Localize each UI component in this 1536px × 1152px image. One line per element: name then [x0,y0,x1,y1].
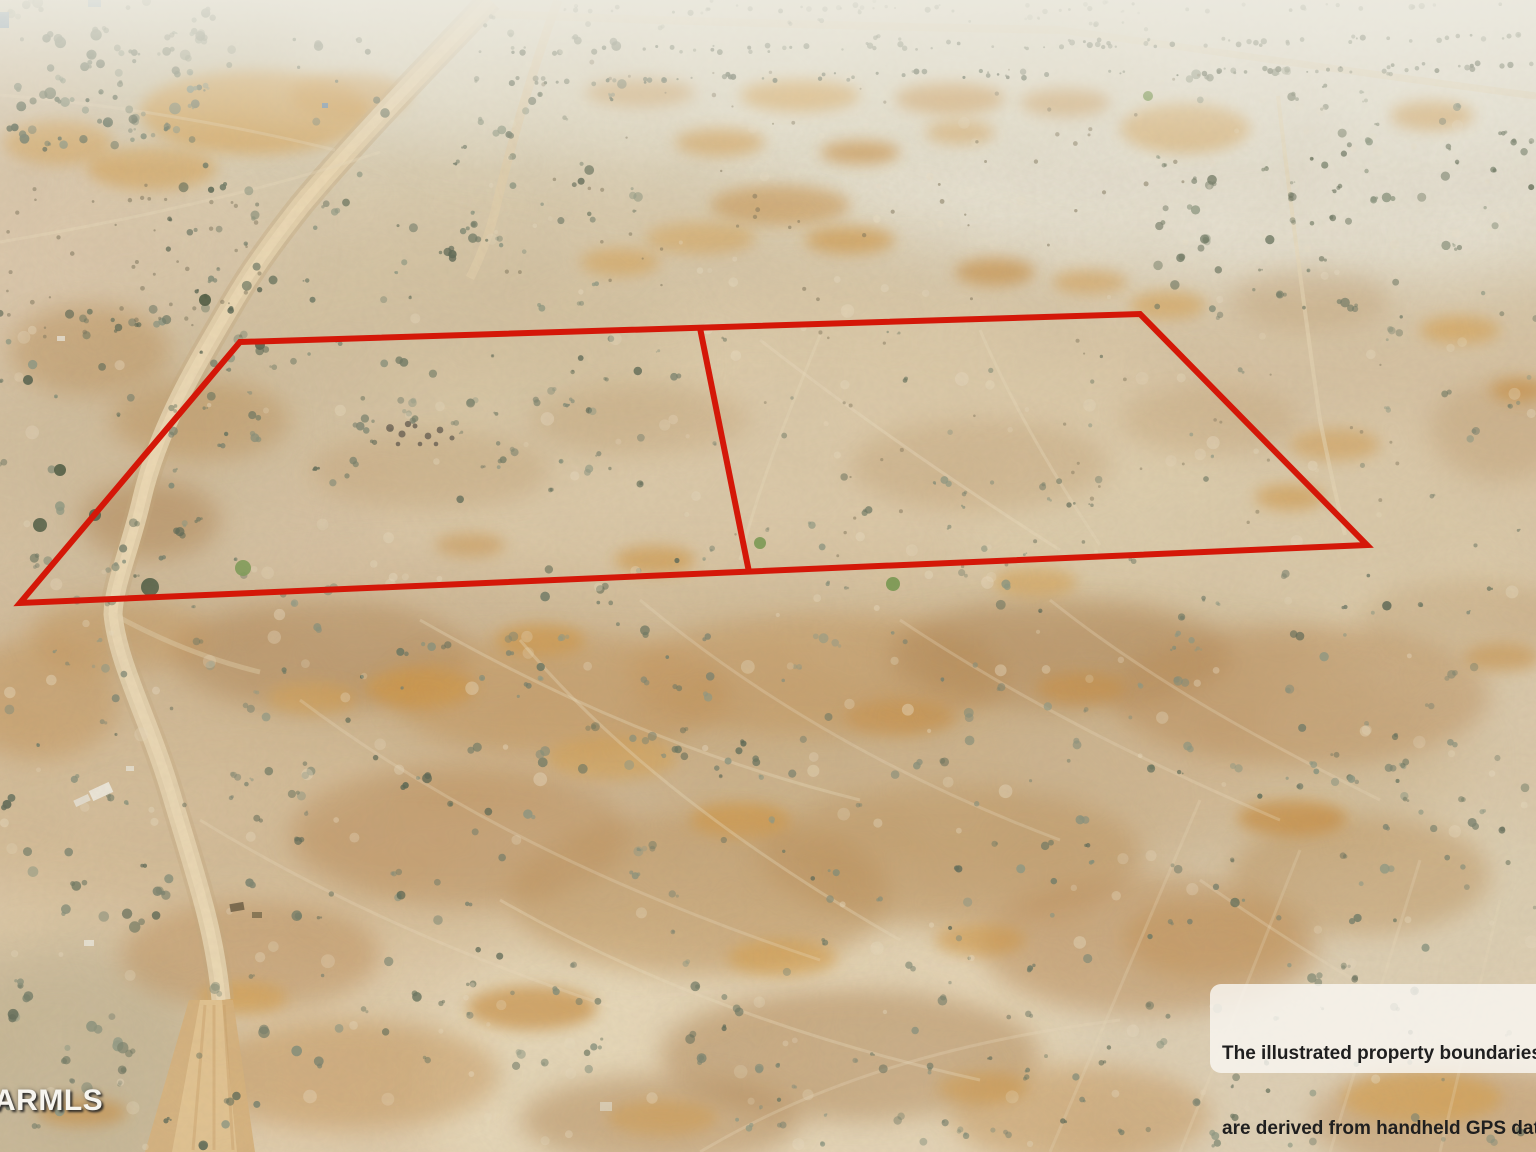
armls-watermark: ARMLS [0,1084,103,1118]
aerial-property-photo: The illustrated property boundaries are … [0,0,1536,1152]
disclaimer-line: are derived from handheld GPS data [1222,1116,1536,1141]
terrain-grain-fine [0,0,1536,1152]
gps-disclaimer-box: The illustrated property boundaries are … [1210,984,1536,1073]
horizon-haze [0,0,1536,170]
desert-terrain-render [0,0,1536,1152]
disclaimer-line: The illustrated property boundaries [1222,1041,1536,1066]
